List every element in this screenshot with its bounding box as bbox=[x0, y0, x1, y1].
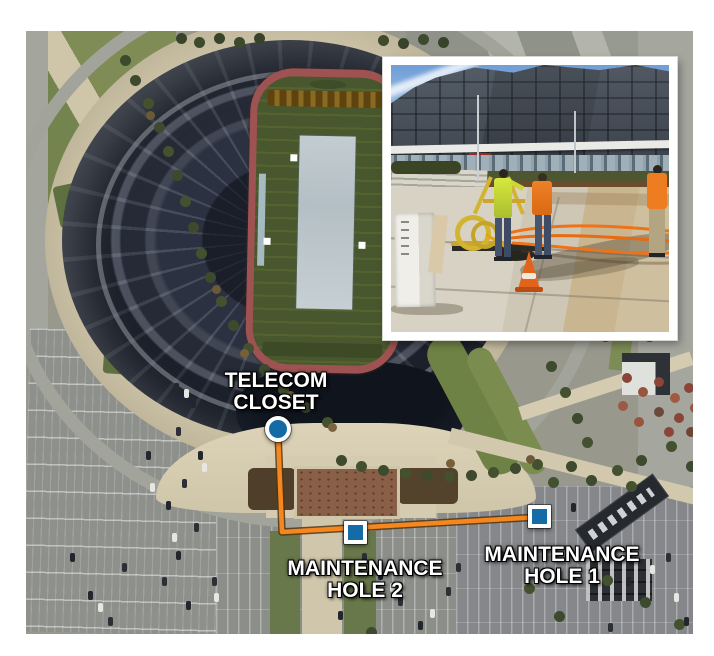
aerial-map: TELECOM CLOSET MAINTENANCE HOLE 2 MAINTE… bbox=[26, 31, 693, 634]
worker-head bbox=[499, 169, 508, 178]
maintenance-hole-2-label: MAINTENANCE HOLE 2 bbox=[270, 558, 460, 603]
maintenance-hole-1-label-line1: MAINTENANCE bbox=[467, 544, 657, 566]
traffic-cone-base bbox=[515, 287, 543, 292]
maintenance-hole-2-label-line2: HOLE 2 bbox=[270, 580, 460, 602]
worker-leg bbox=[495, 218, 502, 256]
maintenance-hole-1-label-line2: HOLE 1 bbox=[467, 566, 657, 588]
worker-leg bbox=[535, 215, 542, 255]
worker-orange-center bbox=[530, 173, 556, 261]
worker-pants bbox=[649, 209, 665, 253]
orange-shirt bbox=[532, 181, 552, 215]
traffic-cone-band bbox=[522, 273, 536, 279]
cabinet-controls bbox=[401, 221, 409, 261]
cable-route-line bbox=[278, 433, 540, 532]
telecom-closet-label-line2: CLOSET bbox=[196, 392, 356, 414]
worker-yellow-vest bbox=[491, 169, 517, 261]
maintenance-hole-1-marker bbox=[528, 505, 551, 528]
maintenance-hole-2-label-line1: MAINTENANCE bbox=[270, 558, 460, 580]
telecom-closet-marker bbox=[265, 416, 291, 442]
maintenance-hole-1-label: MAINTENANCE HOLE 1 bbox=[467, 544, 657, 589]
worker-boots bbox=[534, 255, 552, 259]
worker-leg bbox=[544, 215, 551, 255]
maintenance-hole-2-marker bbox=[344, 521, 367, 544]
telecom-closet-label: TELECOM CLOSET bbox=[196, 370, 356, 415]
figure-root: TELECOM CLOSET MAINTENANCE HOLE 2 MAINTE… bbox=[0, 0, 714, 656]
orange-shirt bbox=[647, 173, 667, 209]
worker-leg bbox=[504, 218, 511, 258]
inset-photo bbox=[391, 65, 669, 332]
worker-boots bbox=[649, 253, 665, 257]
telecom-closet-label-line1: TELECOM bbox=[196, 370, 356, 392]
inset-photo-frame bbox=[383, 57, 677, 340]
worker-orange-right bbox=[647, 165, 669, 257]
worker-boots bbox=[494, 257, 512, 261]
